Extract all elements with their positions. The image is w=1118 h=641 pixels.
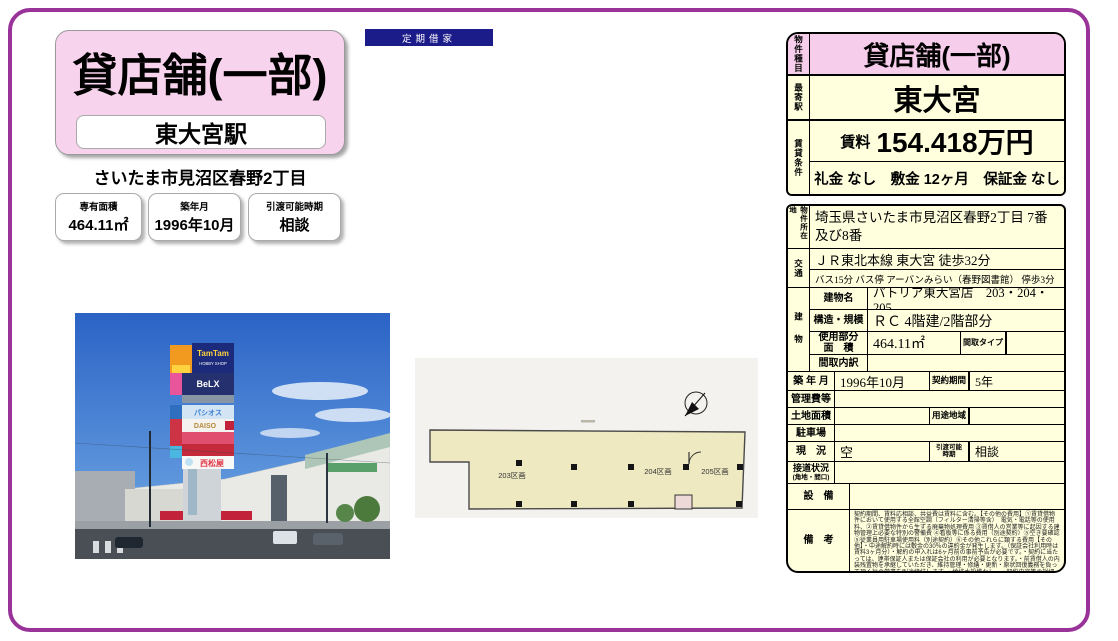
used-area-value: 464.11㎡	[868, 332, 960, 354]
sidewalk	[75, 521, 390, 529]
status-value: 空	[835, 442, 929, 461]
fixed-term-lease-badge: 定期借家	[365, 29, 493, 46]
van	[273, 531, 297, 544]
property-type-title: 貸店舗(一部)	[56, 39, 344, 104]
pillar	[683, 464, 689, 470]
unit-203-label: 203区画	[498, 471, 526, 480]
building-photo-scene: TamTam HOBBY SHOP BeLX パシオス DAISO 西松屋	[75, 313, 390, 559]
setsudo-label: 接道状況 (角地・間口)	[788, 462, 835, 483]
land-label: 土地面積	[788, 408, 835, 424]
access-label: 交通	[788, 249, 810, 287]
page-frame: 貸店舗(一部) 東大宮駅 定期借家 さいたま市見沼区春野2丁目 専有面積 464…	[8, 8, 1090, 632]
sign-belx-text: BeLX	[196, 379, 219, 389]
row-equipment: 設 備	[788, 483, 1064, 509]
daiso-logo	[225, 421, 234, 430]
madori-detail-value	[868, 355, 1064, 371]
floor-plan: 203区画 204区画 205区画	[415, 358, 758, 518]
kanrihi-label: 管理費等	[788, 391, 835, 407]
building-label: 建物	[788, 288, 810, 371]
row-parking: 駐車場	[788, 424, 1064, 441]
rent-label: 賃料	[840, 131, 870, 152]
info-box-delivery-value: 相談	[279, 214, 309, 235]
row-kanrihi: 管理費等	[788, 390, 1064, 407]
yoto-label: 用途地域	[929, 408, 969, 424]
row-remarks: 備 考 契約期間、賃料応相談、共益費は賃料に含む。【その他の費用】①賃貸借物件に…	[788, 509, 1064, 571]
pillar	[571, 464, 577, 470]
delivery-label: 引渡可能 時期	[929, 442, 969, 461]
row-setsudo: 接道状況 (角地・間口)	[788, 461, 1064, 483]
madori-type-value	[1006, 332, 1064, 354]
location-value: 埼玉県さいたま市見沼区春野2丁目 7番及び8番	[810, 206, 1064, 248]
access-line2: バス15分 バス停 アーバンみらい（春野図書館） 停歩3分	[810, 270, 1064, 287]
built-label: 築 年 月	[788, 372, 835, 390]
tower-band	[182, 395, 234, 403]
dark-windows	[271, 475, 287, 523]
sign-red1	[182, 432, 234, 444]
madori-type-label: 間取タイプ	[960, 332, 1006, 354]
car	[313, 533, 343, 545]
summary-row-type: 物件種目 貸店舗(一部)	[788, 34, 1064, 74]
sign-red-side	[170, 419, 182, 446]
yoto-value	[969, 408, 1064, 424]
access-line1: ＪＲ東北本線 東大宮 徒歩32分	[810, 249, 1064, 269]
info-box-delivery-label: 引渡可能時期	[266, 199, 323, 213]
nishimatsuya-logo	[185, 458, 193, 466]
contract-label: 契約期間	[929, 372, 969, 390]
remarks-label: 備 考	[788, 510, 850, 571]
info-box-built-label: 築年月	[180, 199, 209, 213]
pillar	[571, 501, 577, 507]
rent-row: 賃料 154.418万円	[810, 121, 1064, 162]
tree	[336, 504, 354, 522]
crosswalk	[93, 541, 99, 553]
sign-daiso-text: DAISO	[194, 423, 217, 430]
summary-station-value: 東大宮	[810, 76, 1064, 119]
pillar	[516, 460, 522, 466]
row-status: 現 況 空 引渡可能 時期 相談	[788, 441, 1064, 461]
summary-row-station: 最寄駅 東大宮	[788, 74, 1064, 119]
building-name-label: 建物名	[810, 288, 868, 309]
sign-tamtam	[192, 343, 234, 373]
pillar	[628, 464, 634, 470]
stair-block	[675, 495, 692, 509]
sign-hobby-text: HOBBY SHOP	[199, 361, 227, 366]
madori-detail-label: 間取内訳	[810, 355, 868, 371]
unit-outline	[430, 430, 745, 509]
row-access: 交通 ＪＲ東北本線 東大宮 徒歩32分 バス15分 バス停 アーバンみらい（春野…	[788, 248, 1064, 287]
info-box-area: 専有面積 464.11㎡	[55, 193, 142, 241]
sign-nishimatsuya-text: 西松屋	[200, 458, 224, 468]
sign-tamtam-text: TamTam	[197, 349, 229, 358]
crosswalk	[105, 541, 111, 553]
sign-blue-side	[170, 405, 182, 419]
address-line: さいたま市見沼区春野2丁目	[55, 164, 345, 189]
unit-204-label: 204区画	[644, 467, 672, 476]
info-box-built: 築年月 1996年10月	[148, 193, 241, 241]
used-area-label: 使用部分 面 積	[810, 332, 868, 354]
sign-lightblue-side	[170, 446, 182, 458]
equipment-value	[850, 484, 1064, 509]
remarks-value: 契約期間、賃料応相談、共益費は賃料に含む。【その他の費用】①賃貸借物件において使…	[850, 510, 1064, 571]
row-location: 物件所在地 埼玉県さいたま市見沼区春野2丁目 7番及び8番	[788, 206, 1064, 248]
tree	[354, 496, 380, 522]
structure-label: 構造・規模	[810, 310, 868, 331]
info-box-built-value: 1996年10月	[154, 214, 234, 235]
green-sign	[327, 463, 377, 472]
pillar	[516, 501, 522, 507]
plan-caption-mark	[581, 420, 595, 423]
land-value	[835, 408, 929, 424]
detail-table: 物件所在地 埼玉県さいたま市見沼区春野2丁目 7番及び8番 交通 ＪＲ東北本線 …	[786, 204, 1066, 573]
cloud	[272, 382, 368, 400]
cloud	[260, 428, 320, 438]
row-land: 土地面積 用途地域	[788, 407, 1064, 424]
location-label: 物件所在地	[788, 206, 810, 248]
equipment-label: 設 備	[788, 484, 850, 509]
building-name-value: パトリア東大宮店 203・204・205	[868, 288, 1064, 309]
pillar	[736, 501, 742, 507]
station-name-box: 東大宮駅	[76, 115, 326, 149]
info-box-area-label: 専有面積	[79, 199, 117, 213]
summary-row-terms: 賃貸条件 賃料 154.418万円 礼金 なし 敷金 12ヶ月 保証金 なし	[788, 119, 1064, 194]
car	[115, 537, 143, 548]
parking-label: 駐車場	[788, 425, 835, 441]
summary-type-value: 貸店舗(一部)	[810, 34, 1064, 74]
info-box-delivery: 引渡可能時期 相談	[248, 193, 341, 241]
summary-table: 物件種目 貸店舗(一部) 最寄駅 東大宮 賃貸条件 賃料 154.418万円 礼…	[786, 32, 1066, 196]
cloud	[315, 408, 390, 422]
pillar	[737, 464, 743, 470]
delivery-value: 相談	[969, 442, 1064, 461]
row-built: 築 年 月 1996年10月 契約期間 5年	[788, 371, 1064, 390]
sign-pink-side	[170, 373, 182, 395]
summary-type-label: 物件種目	[788, 34, 810, 74]
row-building-group: 建物 建物名 パトリア東大宮店 203・204・205 構造・規模 ＲＣ 4階建…	[788, 287, 1064, 371]
fees-row: 礼金 なし 敷金 12ヶ月 保証金 なし	[810, 162, 1064, 194]
structure-value: ＲＣ 4階建/2階部分	[868, 310, 1064, 331]
floor-plan-drawing: 203区画 204区画 205区画	[415, 358, 758, 518]
kanrihi-value	[835, 391, 1064, 407]
unit-205-label: 205区画	[701, 467, 729, 476]
rent-value: 154.418万円	[876, 121, 1033, 161]
title-card: 貸店舗(一部) 東大宮駅	[55, 30, 345, 155]
parking-value	[835, 425, 1064, 441]
status-label: 現 況	[788, 442, 835, 461]
contract-value: 5年	[969, 372, 1064, 390]
built-value: 1996年10月	[835, 372, 929, 390]
info-box-area-value: 464.11㎡	[68, 214, 128, 235]
sign-pasios-text: パシオス	[194, 408, 222, 417]
pillar	[628, 501, 634, 507]
building-photo: TamTam HOBBY SHOP BeLX パシオス DAISO 西松屋	[75, 313, 390, 559]
setsudo-value	[835, 462, 1064, 483]
summary-station-label: 最寄駅	[788, 76, 810, 119]
summary-terms-label: 賃貸条件	[788, 121, 810, 194]
